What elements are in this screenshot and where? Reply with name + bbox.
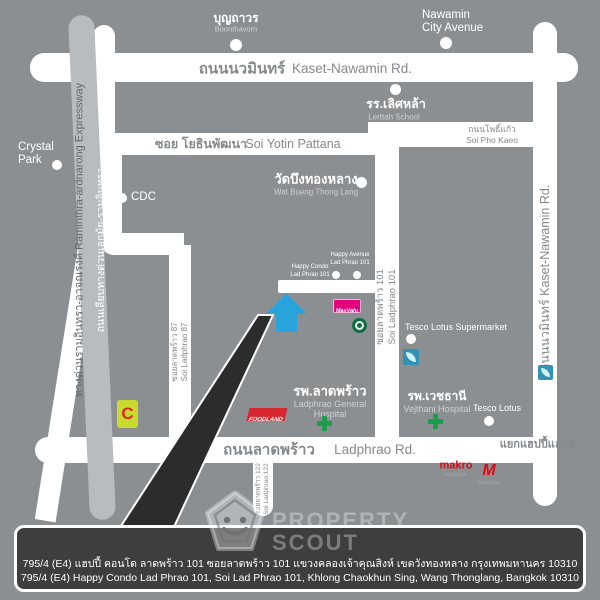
tesco-supermarket-dot xyxy=(406,334,416,344)
the-mall-sublabel: bangkapi xyxy=(478,480,500,486)
address-line-thai: 795/4 (E4) แฮปปี้ คอนโด ลาดพร้าว 101 ซอย… xyxy=(23,557,578,571)
tesco-leaf-shape xyxy=(541,368,550,377)
location-map: ถนนนวมินทร์ Kaset-Nawamin Rd. ถนนนวมินทร… xyxy=(0,0,600,600)
happy-condo-label: Happy CondoLad Phrao 101 xyxy=(290,263,329,279)
tesco-lotus-label: Tesco Lotus xyxy=(473,403,521,413)
vejthani-hospital-label-english: Vejthani Hospital xyxy=(403,404,470,414)
label-soi-ladphrao-87: ซอยลาดพร้าว 87Soi Ladphrao 87 xyxy=(170,322,190,381)
lerttah-school-dot xyxy=(390,84,401,95)
happy-avenue-label: Happy AvenueLad Phrao 101 xyxy=(330,251,369,267)
label-road-along-expressway: ถนนเลียบทางด่วนเอกมัย-รามอินทรา xyxy=(95,168,107,333)
label-kaset-nawamin-vertical: ถนนนวมินทร์ Kaset-Nawamin Rd. xyxy=(538,185,552,372)
ladphrao-hospital-label-thai: รพ.ลาดพร้าว xyxy=(293,385,366,400)
address-line-english: 795/4 (E4) Happy Condo Lad Phrao 101, So… xyxy=(21,571,579,585)
tesco-leaf-shape xyxy=(406,352,416,362)
cdc-dot xyxy=(117,193,127,203)
label-happyland-junction: แยกแฮปปี้แลนด์ xyxy=(500,439,576,452)
ladphrao-hospital-label-english1: Ladphrao General xyxy=(294,399,367,409)
the-mall-logo: M xyxy=(482,462,495,480)
happy-avenue-dot xyxy=(353,271,361,279)
tesco-supermarket-label: Tesco Lotus Supermarket xyxy=(405,322,507,332)
tesco-lotus-store-icon xyxy=(538,365,553,380)
tesco-lotus-supermarket-icon xyxy=(403,349,419,365)
big-c-letter: C xyxy=(121,404,133,423)
label-expressway: ทางด่วนรามอินทรา-อาจณรงค์ Raminthra-ardn… xyxy=(74,83,87,397)
label-ladphrao-english: Ladphrao Rd. xyxy=(334,442,416,458)
wat-bueng-thong-lang-dot xyxy=(356,177,367,188)
label-kaset-nawamin-thai: ถนนนวมินทร์ xyxy=(199,60,285,77)
wat-label-thai: วัดบึงทองหลาง xyxy=(274,173,357,188)
foodland-icon: FOODLAND xyxy=(246,408,287,421)
tesco-lotus-dot xyxy=(484,416,494,426)
makro-logo: makro xyxy=(439,460,472,473)
makro-sublabel: bangkapi xyxy=(444,472,466,478)
starbucks-icon xyxy=(352,318,367,333)
boonthavorn-label-english: Boonthavorn xyxy=(215,26,258,35)
lerttah-school-label-english: Lerttah School xyxy=(368,112,420,121)
maxvalu-icon: MaxValu xyxy=(333,299,361,313)
boonthavorn-dot xyxy=(230,39,242,51)
road-happy-condo-soi xyxy=(278,280,379,293)
location-arrow-icon xyxy=(266,293,307,332)
vejthani-hospital-cross-icon xyxy=(428,414,443,429)
nawamin-city-avenue-label: NawaminCity Avenue xyxy=(422,9,483,35)
cdc-label: CDC xyxy=(131,191,156,204)
big-c-icon: C xyxy=(117,400,138,428)
maxvalu-text: MaxValu xyxy=(336,308,358,314)
foodland-text: FOODLAND xyxy=(248,417,283,423)
happy-condo-dot xyxy=(332,271,340,279)
label-soi-ladphrao-101: ซอยลาดพร้าว 101Soi Ladphrao 101 xyxy=(375,269,399,345)
wat-label-english: Wat Bueng Thong Lang xyxy=(274,187,358,196)
crystal-park-label: CrystalPark xyxy=(18,141,54,167)
lerttah-school-label-thai: รร.เลิศหล้า xyxy=(366,97,426,111)
label-ladphrao-thai: ถนนลาดพร้าว xyxy=(223,441,315,458)
nawamin-city-avenue-dot xyxy=(440,37,452,49)
label-soi-ladphrao-122: ซอยลาดพร้าว 122Soi Ladphrao 122 xyxy=(255,463,271,515)
label-kaset-nawamin-english: Kaset-Nawamin Rd. xyxy=(292,61,412,77)
label-pho-kaeo-english: Soi Pho Kaeo xyxy=(466,136,518,146)
starbucks-center xyxy=(357,323,362,328)
address-bar: 795/4 (E4) แฮปปี้ คอนโด ลาดพร้าว 101 ซอย… xyxy=(14,525,586,592)
label-yotin-pattana-thai: ซอย โยธินพัฒนา xyxy=(155,137,247,151)
label-yotin-pattana-english: Soi Yotin Pattana xyxy=(245,137,340,151)
label-pho-kaeo-thai: ถนนโพธิ์แก้ว xyxy=(468,125,516,135)
ladphrao-hospital-label-english2: Hospital xyxy=(314,409,347,419)
vejthani-hospital-label-thai: รพ.เวชธานี xyxy=(408,390,467,404)
